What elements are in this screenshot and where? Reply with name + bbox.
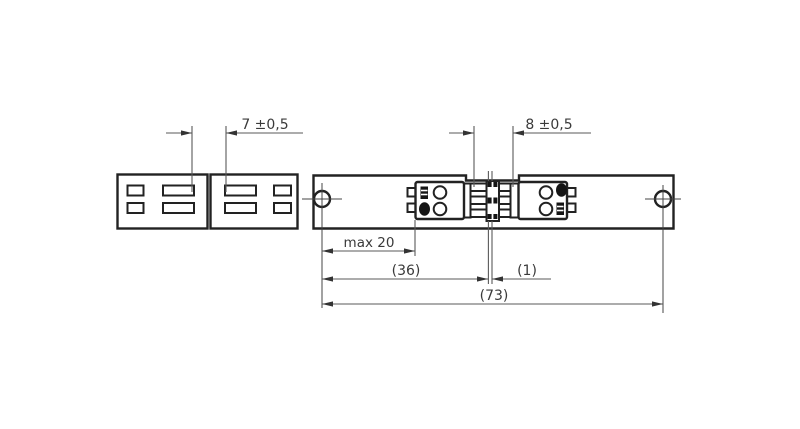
slot	[274, 203, 291, 213]
arrowhead	[322, 276, 333, 281]
dimension-73: (73)	[322, 288, 663, 307]
slot	[274, 186, 291, 196]
slot	[225, 186, 256, 196]
slot	[128, 203, 144, 213]
latch-mark	[488, 214, 492, 219]
arrowhead	[322, 301, 333, 306]
dim-36-label: (36)	[392, 263, 421, 279]
arrowhead	[226, 130, 237, 135]
arrowhead	[477, 276, 488, 281]
dimension-1: (1)	[492, 263, 551, 282]
arrowhead	[492, 276, 503, 281]
dim-73-label: (73)	[480, 288, 509, 304]
contact-oval	[419, 202, 430, 216]
dim-max20-label: max 20	[344, 235, 395, 251]
latch-mark	[493, 214, 497, 219]
latch-mark	[488, 198, 492, 204]
arrowhead	[463, 130, 474, 135]
arrowhead	[322, 248, 333, 253]
ribbed-contact	[557, 203, 565, 216]
contact-hole	[540, 186, 553, 199]
dim-7-label: 7 ±0,5	[241, 117, 288, 133]
ribbed-contact	[421, 187, 429, 200]
contact-hole	[434, 186, 447, 199]
dim-8-label: 8 ±0,5	[525, 117, 572, 133]
technical-drawing-canvas: 7 ±0,5 8 ±0,5 max 20 (36) (1) (73)	[0, 0, 800, 429]
slot	[128, 186, 144, 196]
joint-linkage	[463, 181, 519, 221]
link-bar	[471, 210, 488, 218]
arrowhead	[404, 248, 415, 253]
dimension-36: (36)	[322, 263, 488, 282]
latch-mark	[493, 182, 497, 187]
latch-mark	[488, 182, 492, 187]
slot	[163, 203, 194, 213]
drawing-svg: 7 ±0,5 8 ±0,5 max 20 (36) (1) (73)	[0, 0, 800, 429]
link-bar	[471, 184, 488, 192]
contact-hole	[540, 203, 553, 216]
contact-hole	[434, 203, 447, 216]
arrowhead	[652, 301, 663, 306]
connector-block-left	[408, 182, 465, 219]
top-view-right-block	[211, 175, 298, 229]
arrowhead	[513, 130, 524, 135]
slot	[163, 186, 194, 196]
top-view	[118, 175, 298, 229]
connector-block-right	[519, 182, 576, 219]
arrowhead	[181, 130, 192, 135]
link-bar	[471, 197, 488, 205]
slot	[225, 203, 256, 213]
latch-mark	[493, 198, 497, 204]
contact-oval	[556, 183, 567, 197]
dim-1-label: (1)	[517, 263, 537, 279]
top-view-left-block	[118, 175, 208, 229]
